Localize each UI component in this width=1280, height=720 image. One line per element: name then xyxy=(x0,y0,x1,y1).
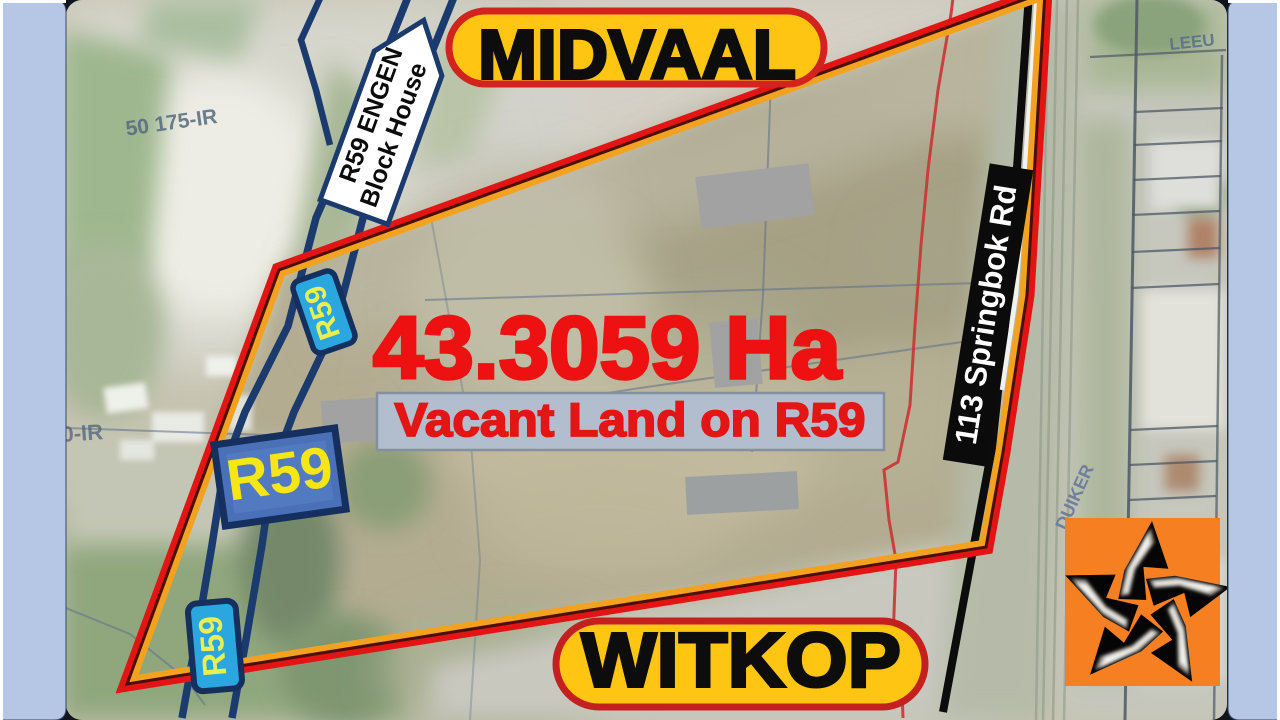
svg-text:Vacant Land on R59: Vacant Land on R59 xyxy=(395,393,866,446)
svg-text:R59: R59 xyxy=(191,614,233,678)
svg-text:MIDVAAL: MIDVAAL xyxy=(478,15,796,93)
svg-text:0-IR: 0-IR xyxy=(61,419,104,447)
svg-text:43.3059 Ha: 43.3059 Ha xyxy=(373,298,842,397)
svg-text:WITKOP: WITKOP xyxy=(581,617,901,703)
